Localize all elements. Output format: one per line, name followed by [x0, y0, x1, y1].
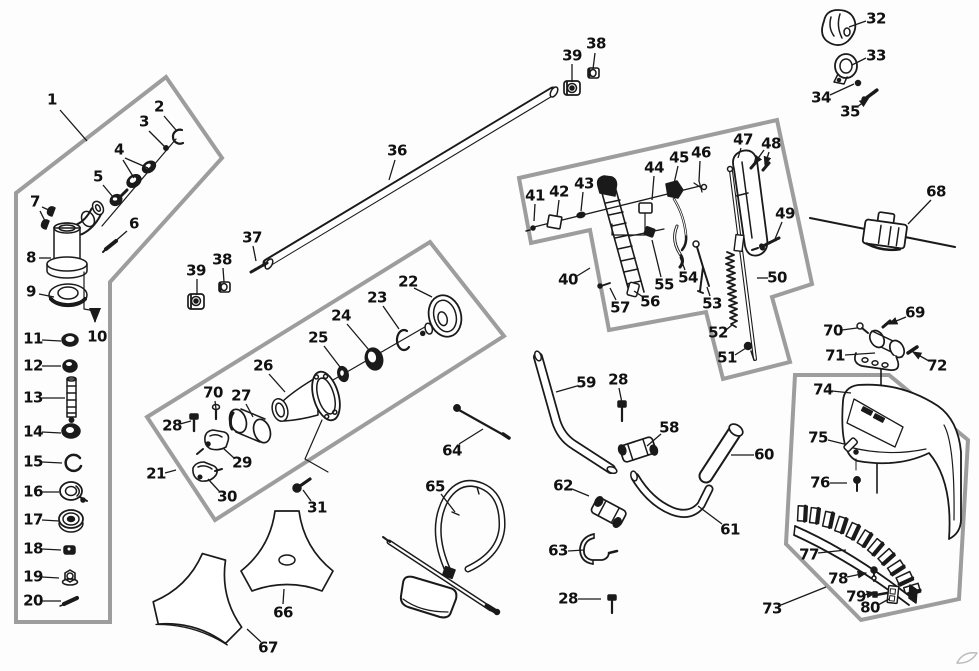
part-flange-nut-19	[63, 570, 78, 585]
part-throttle-cable-68	[810, 210, 955, 252]
part-nut-18	[64, 546, 75, 554]
part-holder-16	[60, 482, 87, 502]
part-blade-66	[241, 511, 333, 591]
part-screw-28-gearbox	[190, 414, 198, 431]
part-retaining-ring-2	[173, 130, 183, 144]
part-screw-69	[883, 321, 890, 327]
throttle-box-outline	[519, 120, 812, 379]
part-clamp-block-58	[617, 435, 658, 465]
part-bearing-24	[363, 346, 385, 372]
part-pin-20	[60, 598, 77, 606]
part-screw-3	[164, 146, 168, 150]
part-screw-28-top	[618, 401, 626, 421]
part-bolt-31	[293, 479, 310, 492]
part-harness-65	[383, 483, 502, 617]
part-snap-ring-15	[66, 455, 81, 471]
part-nut-34	[856, 81, 861, 86]
part-hanger-clamp-32	[822, 10, 855, 45]
part-washer-12	[63, 360, 77, 372]
part-handlebar-right-61	[630, 470, 709, 513]
watermark-curl	[957, 653, 977, 663]
part-bushing-38-top	[588, 68, 599, 78]
part-cup-washer-17	[59, 510, 83, 532]
part-screw-79	[873, 592, 887, 597]
part-bearing-14	[62, 424, 80, 438]
part-adjuster-42	[547, 215, 562, 229]
part-handlebar-left-59	[533, 350, 617, 474]
part-spring-52	[726, 252, 737, 327]
diagram-art	[0, 0, 979, 671]
part-debris-shield-74	[842, 385, 961, 539]
part-screw-72	[908, 347, 917, 353]
part-plate-80	[887, 586, 899, 604]
part-throttle-body-56-57	[598, 176, 644, 297]
part-clamp-29	[197, 430, 229, 454]
part-link-55	[630, 227, 664, 238]
part-gear-housing-26	[270, 369, 345, 472]
part-flange-9	[49, 284, 87, 306]
part-cable-bead-43	[576, 212, 585, 219]
part-clamp-30	[193, 462, 222, 481]
part-washer-25	[336, 365, 350, 382]
part-grip-60	[706, 422, 745, 476]
part-gear-housing-8	[47, 199, 106, 278]
part-clamp-62	[589, 495, 628, 528]
part-fork-53	[693, 241, 709, 293]
part-bearing-11	[62, 334, 78, 346]
part-clamp-63	[580, 534, 617, 564]
part-clamp-mount-71	[855, 328, 907, 370]
part-pinion-5	[108, 190, 127, 208]
part-bushing-39-top	[564, 81, 580, 95]
part-drive-shaft-tube-36	[264, 86, 560, 271]
part-ring-clamp-33	[834, 54, 857, 84]
parts-diagram-page: 1234567891011121314151617181920212223242…	[0, 0, 979, 671]
part-screw-76	[854, 477, 860, 491]
part-bushing-39-left	[188, 294, 204, 309]
left-parts-box-outline	[16, 77, 222, 622]
part-blade-guard-77	[794, 506, 921, 605]
part-screw-28-bottom	[608, 595, 616, 613]
part-bearings-4	[125, 159, 158, 190]
part-head-drum-22	[413, 292, 466, 344]
part-spline-shaft-13	[67, 377, 76, 422]
part-rod-tool-64	[454, 405, 509, 438]
part-blade-67	[147, 544, 258, 647]
leader-lines	[39, 21, 931, 642]
part-bushing-38-left	[219, 282, 230, 292]
part-screw-70-clamp	[857, 323, 868, 333]
